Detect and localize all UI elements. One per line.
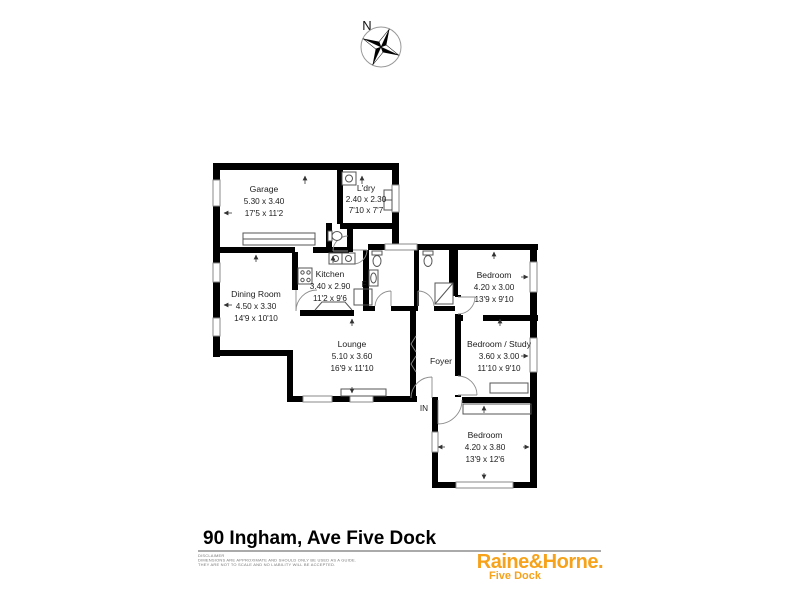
floorplan-page: N <box>0 0 800 600</box>
room-label-foyer: Foyer <box>430 356 452 366</box>
toilet-icon <box>372 251 382 267</box>
svg-text:Bedroom: Bedroom <box>468 430 503 440</box>
svg-text:16'9 x 11'10: 16'9 x 11'10 <box>330 364 373 373</box>
toilet-icon <box>423 251 433 267</box>
laundry-tub-icon <box>342 172 356 185</box>
svg-text:4.20 x 3.80: 4.20 x 3.80 <box>465 443 506 452</box>
svg-text:2.40 x 2.30: 2.40 x 2.30 <box>346 195 387 204</box>
archway-outline <box>315 302 352 310</box>
svg-text:4.20 x 3.00: 4.20 x 3.00 <box>474 283 515 292</box>
svg-text:11'10 x 9'10: 11'10 x 9'10 <box>477 364 520 373</box>
svg-text:L'dry: L'dry <box>357 183 376 193</box>
page-title: 90 Ingham, Ave Five Dock <box>203 528 436 549</box>
svg-text:14'9 x 10'10: 14'9 x 10'10 <box>234 314 278 323</box>
svg-text:3.40 x 2.90: 3.40 x 2.90 <box>310 282 351 291</box>
svg-text:Bedroom: Bedroom <box>477 270 512 280</box>
svg-text:Foyer: Foyer <box>430 356 452 366</box>
svg-text:5.10 x 3.60: 5.10 x 3.60 <box>332 352 373 361</box>
room-label-bedroom-2: Bedroom 4.20 x 3.80 13'9 x 12'6 <box>465 430 506 464</box>
room-label-laundry: L'dry 2.40 x 2.30 7'10 x 7'7 <box>346 183 387 215</box>
room-label-bedroom-1: Bedroom 4.20 x 3.00 13'9 x 9'10 <box>474 270 515 304</box>
svg-text:13'9 x 12'6: 13'9 x 12'6 <box>465 455 505 464</box>
room-label-kitchen: Kitchen 3.40 x 2.90 11'2 x 9'6 <box>310 269 351 303</box>
compass-rose-icon: N <box>354 18 407 74</box>
svg-text:4.50 x 3.30: 4.50 x 3.30 <box>236 302 277 311</box>
floorplan-svg: N <box>0 0 800 600</box>
svg-text:11'2 x 9'6: 11'2 x 9'6 <box>313 294 347 303</box>
fixtures <box>243 172 531 414</box>
svg-text:Dining Room: Dining Room <box>231 289 281 299</box>
robe-outline <box>490 383 528 393</box>
brand-office: Five Dock <box>489 570 542 582</box>
garage-door-icon <box>243 233 315 245</box>
disclaimer-line-2: THEY ARE NOT TO SCALE AND NO LIABILITY W… <box>198 562 335 567</box>
footer: 90 Ingham, Ave Five Dock DISCLAIMER DIME… <box>198 528 603 582</box>
basin-icon <box>369 270 378 286</box>
svg-text:5.30 x 3.40: 5.30 x 3.40 <box>244 197 285 206</box>
svg-text:Garage: Garage <box>250 184 279 194</box>
svg-text:Lounge: Lounge <box>338 339 367 349</box>
compass-north-label: N <box>362 18 371 33</box>
shower-icon <box>435 283 453 304</box>
fridge-label: F <box>361 280 366 289</box>
room-label-garage: Garage 5.30 x 3.40 17'5 x 11'2 <box>244 184 285 218</box>
svg-text:7'10 x 7'7: 7'10 x 7'7 <box>349 206 384 215</box>
svg-text:13'9 x 9'10: 13'9 x 9'10 <box>474 295 514 304</box>
room-label-dining: Dining Room 4.50 x 3.30 14'9 x 10'10 <box>231 289 281 323</box>
entry-label: IN <box>420 404 428 413</box>
svg-text:17'5 x 11'2: 17'5 x 11'2 <box>245 209 284 218</box>
svg-text:Bedroom / Study: Bedroom / Study <box>467 339 532 349</box>
brand-logo: Raine&Horne. Five Dock <box>477 551 603 582</box>
toilet-icon <box>328 231 342 241</box>
hearth-outline <box>341 389 386 396</box>
svg-text:Kitchen: Kitchen <box>316 269 345 279</box>
room-label-lounge: Lounge 5.10 x 3.60 16'9 x 11'10 <box>330 339 373 373</box>
svg-text:3.60 x 3.00: 3.60 x 3.00 <box>479 352 520 361</box>
robe-outline <box>463 404 531 414</box>
